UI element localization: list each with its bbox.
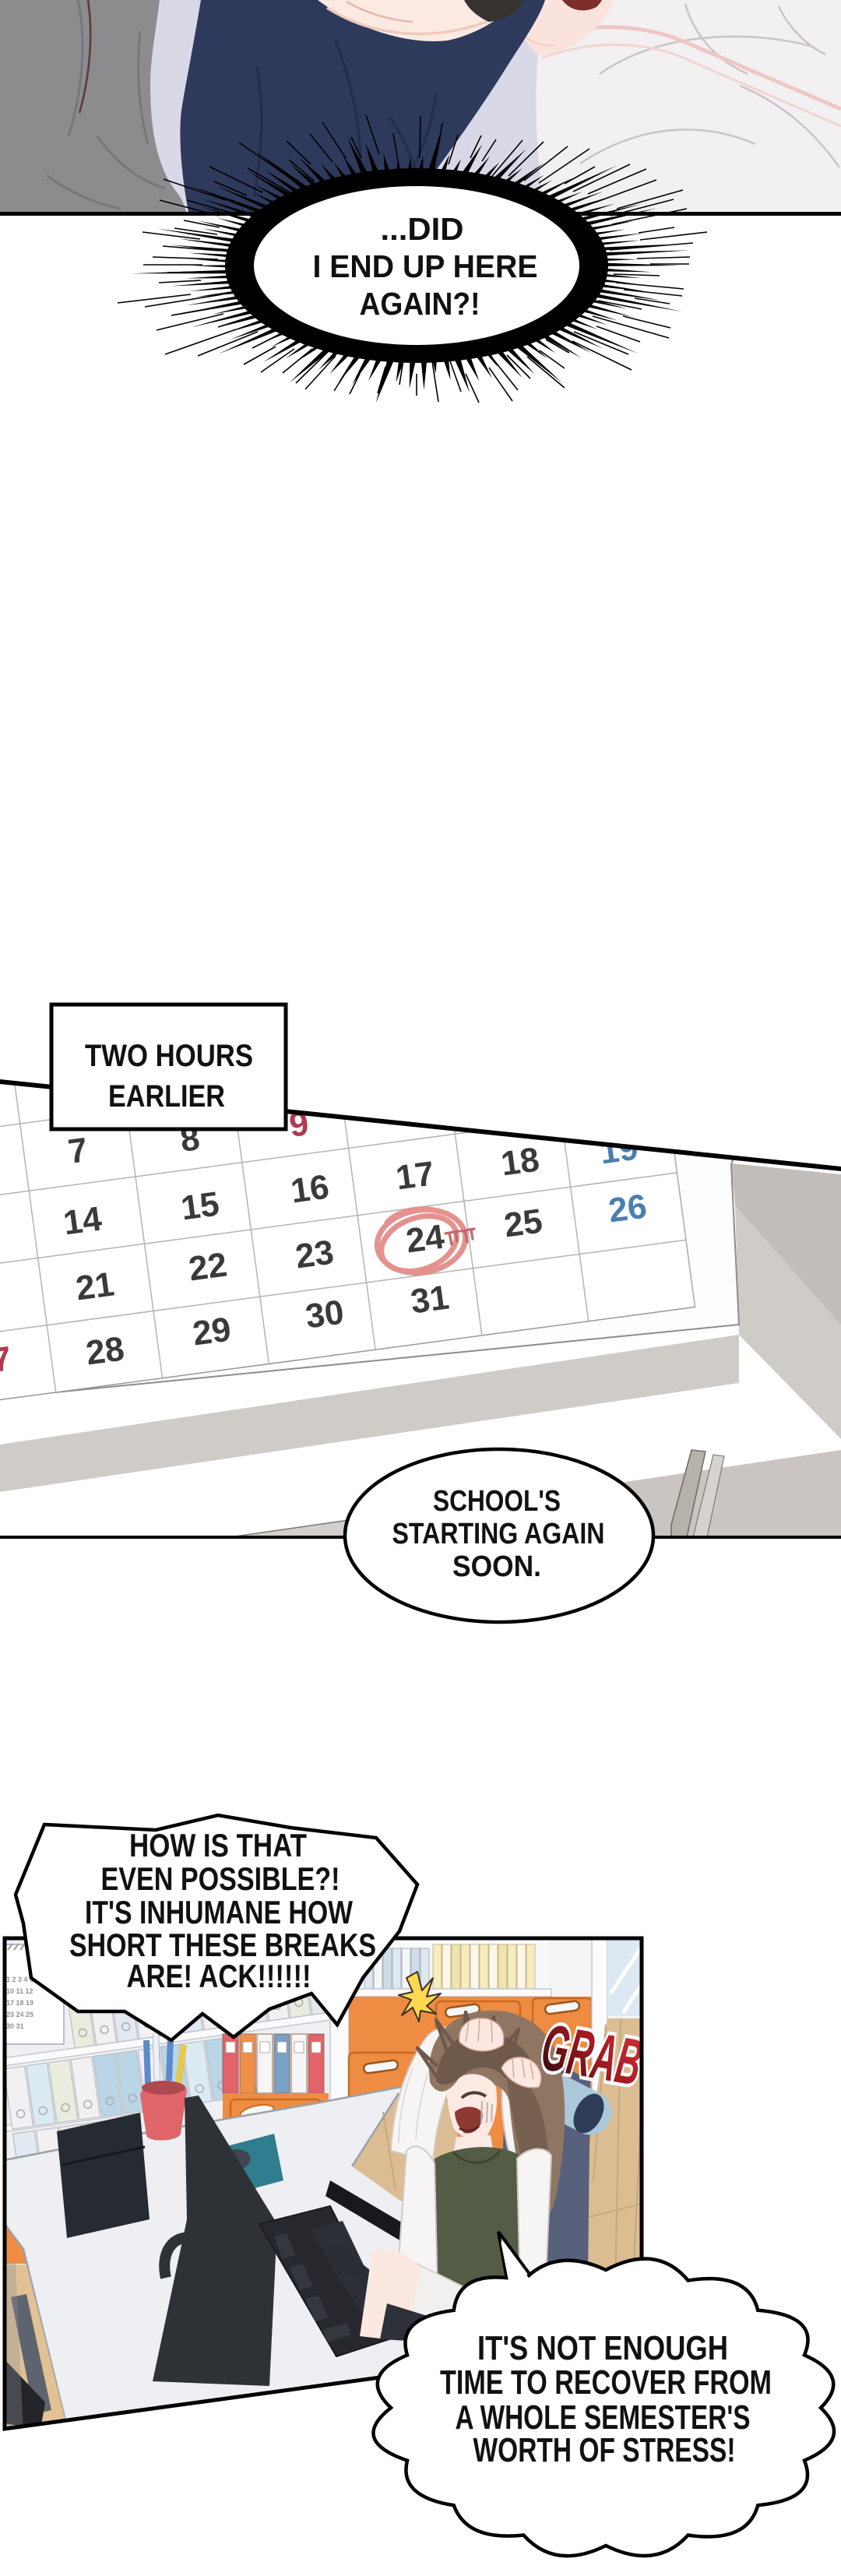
svg-text:28: 28 bbox=[83, 1329, 126, 1372]
svg-text:SCHOOL'S: SCHOOL'S bbox=[433, 1485, 561, 1518]
svg-text:TIME TO RECOVER FROM: TIME TO RECOVER FROM bbox=[440, 2363, 772, 2402]
svg-text:...DID: ...DID bbox=[381, 211, 464, 247]
svg-text:I END UP HERE: I END UP HERE bbox=[313, 248, 538, 284]
svg-text:23 24 25: 23 24 25 bbox=[6, 2011, 33, 2018]
svg-text:31: 31 bbox=[408, 1278, 451, 1321]
svg-text:ARE! ACK!!!!!!: ARE! ACK!!!!!! bbox=[127, 1958, 311, 1994]
svg-text:26: 26 bbox=[606, 1187, 649, 1230]
svg-text:IT'S NOT ENOUGH: IT'S NOT ENOUGH bbox=[477, 2329, 728, 2367]
svg-text:HOW IS THAT: HOW IS THAT bbox=[129, 1827, 307, 1863]
svg-text:10 11 12: 10 11 12 bbox=[6, 1987, 33, 1995]
svg-text:IT'S INHUMANE HOW: IT'S INHUMANE HOW bbox=[85, 1894, 353, 1930]
svg-text:EARLIER: EARLIER bbox=[108, 1079, 225, 1114]
svg-text:18: 18 bbox=[498, 1140, 541, 1183]
svg-text:17 18 19: 17 18 19 bbox=[6, 1999, 33, 2007]
svg-text:EVEN POSSIBLE?!: EVEN POSSIBLE?! bbox=[101, 1860, 340, 1897]
svg-text:14: 14 bbox=[61, 1199, 104, 1242]
svg-text:STARTING AGAIN: STARTING AGAIN bbox=[392, 1518, 605, 1550]
svg-text:TWO HOURS: TWO HOURS bbox=[85, 1039, 253, 1073]
svg-text:15: 15 bbox=[178, 1184, 221, 1227]
svg-text:24: 24 bbox=[403, 1217, 447, 1260]
svg-text:29: 29 bbox=[190, 1310, 233, 1353]
svg-text:AGAIN?!: AGAIN?! bbox=[360, 286, 480, 322]
svg-text:22: 22 bbox=[186, 1245, 229, 1288]
svg-text:21: 21 bbox=[73, 1265, 116, 1307]
svg-text:25: 25 bbox=[501, 1202, 544, 1244]
svg-text:30 31: 30 31 bbox=[6, 2022, 24, 2030]
svg-text:30: 30 bbox=[303, 1293, 346, 1336]
svg-text:WORTH OF STRESS!: WORTH OF STRESS! bbox=[473, 2431, 736, 2469]
svg-text:16: 16 bbox=[288, 1167, 331, 1210]
svg-text:23: 23 bbox=[293, 1233, 336, 1276]
svg-text:17: 17 bbox=[393, 1154, 436, 1197]
svg-text:SOON.: SOON. bbox=[452, 1550, 541, 1583]
